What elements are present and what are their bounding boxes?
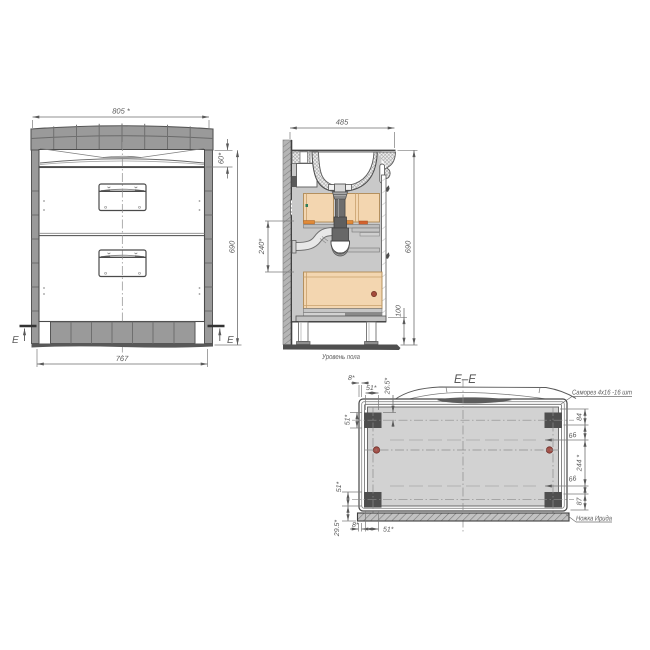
svg-text:51*: 51*	[366, 385, 377, 392]
svg-text:8*: 8*	[348, 375, 355, 382]
svg-text:Уровень пола: Уровень пола	[321, 352, 360, 361]
svg-text:60*: 60*	[217, 152, 226, 164]
svg-text:51*: 51*	[345, 414, 352, 425]
svg-text:244 *: 244 *	[577, 455, 584, 473]
svg-text:26.5*: 26.5*	[385, 378, 392, 396]
svg-text:29.5*: 29.5*	[334, 520, 341, 538]
svg-text:E–E: E–E	[454, 372, 477, 386]
svg-text:84: 84	[577, 413, 584, 421]
svg-text:E: E	[12, 335, 19, 346]
svg-text:51*: 51*	[383, 527, 394, 534]
svg-text:485: 485	[336, 118, 349, 127]
svg-text:690: 690	[228, 240, 237, 253]
svg-text:100: 100	[396, 305, 403, 317]
svg-text:240*: 240*	[257, 238, 266, 256]
svg-text:87: 87	[577, 497, 584, 506]
svg-text:690: 690	[404, 240, 413, 253]
svg-text:Саморез 4x16 -16 шт: Саморез 4x16 -16 шт	[572, 390, 632, 397]
svg-text:767: 767	[116, 354, 129, 363]
svg-text:51*: 51*	[336, 481, 343, 492]
svg-text:Ножка Ирида: Ножка Ирида	[576, 515, 612, 523]
svg-text:E: E	[227, 335, 234, 346]
svg-text:8*: 8*	[352, 522, 359, 529]
svg-text:805 *: 805 *	[112, 107, 131, 116]
